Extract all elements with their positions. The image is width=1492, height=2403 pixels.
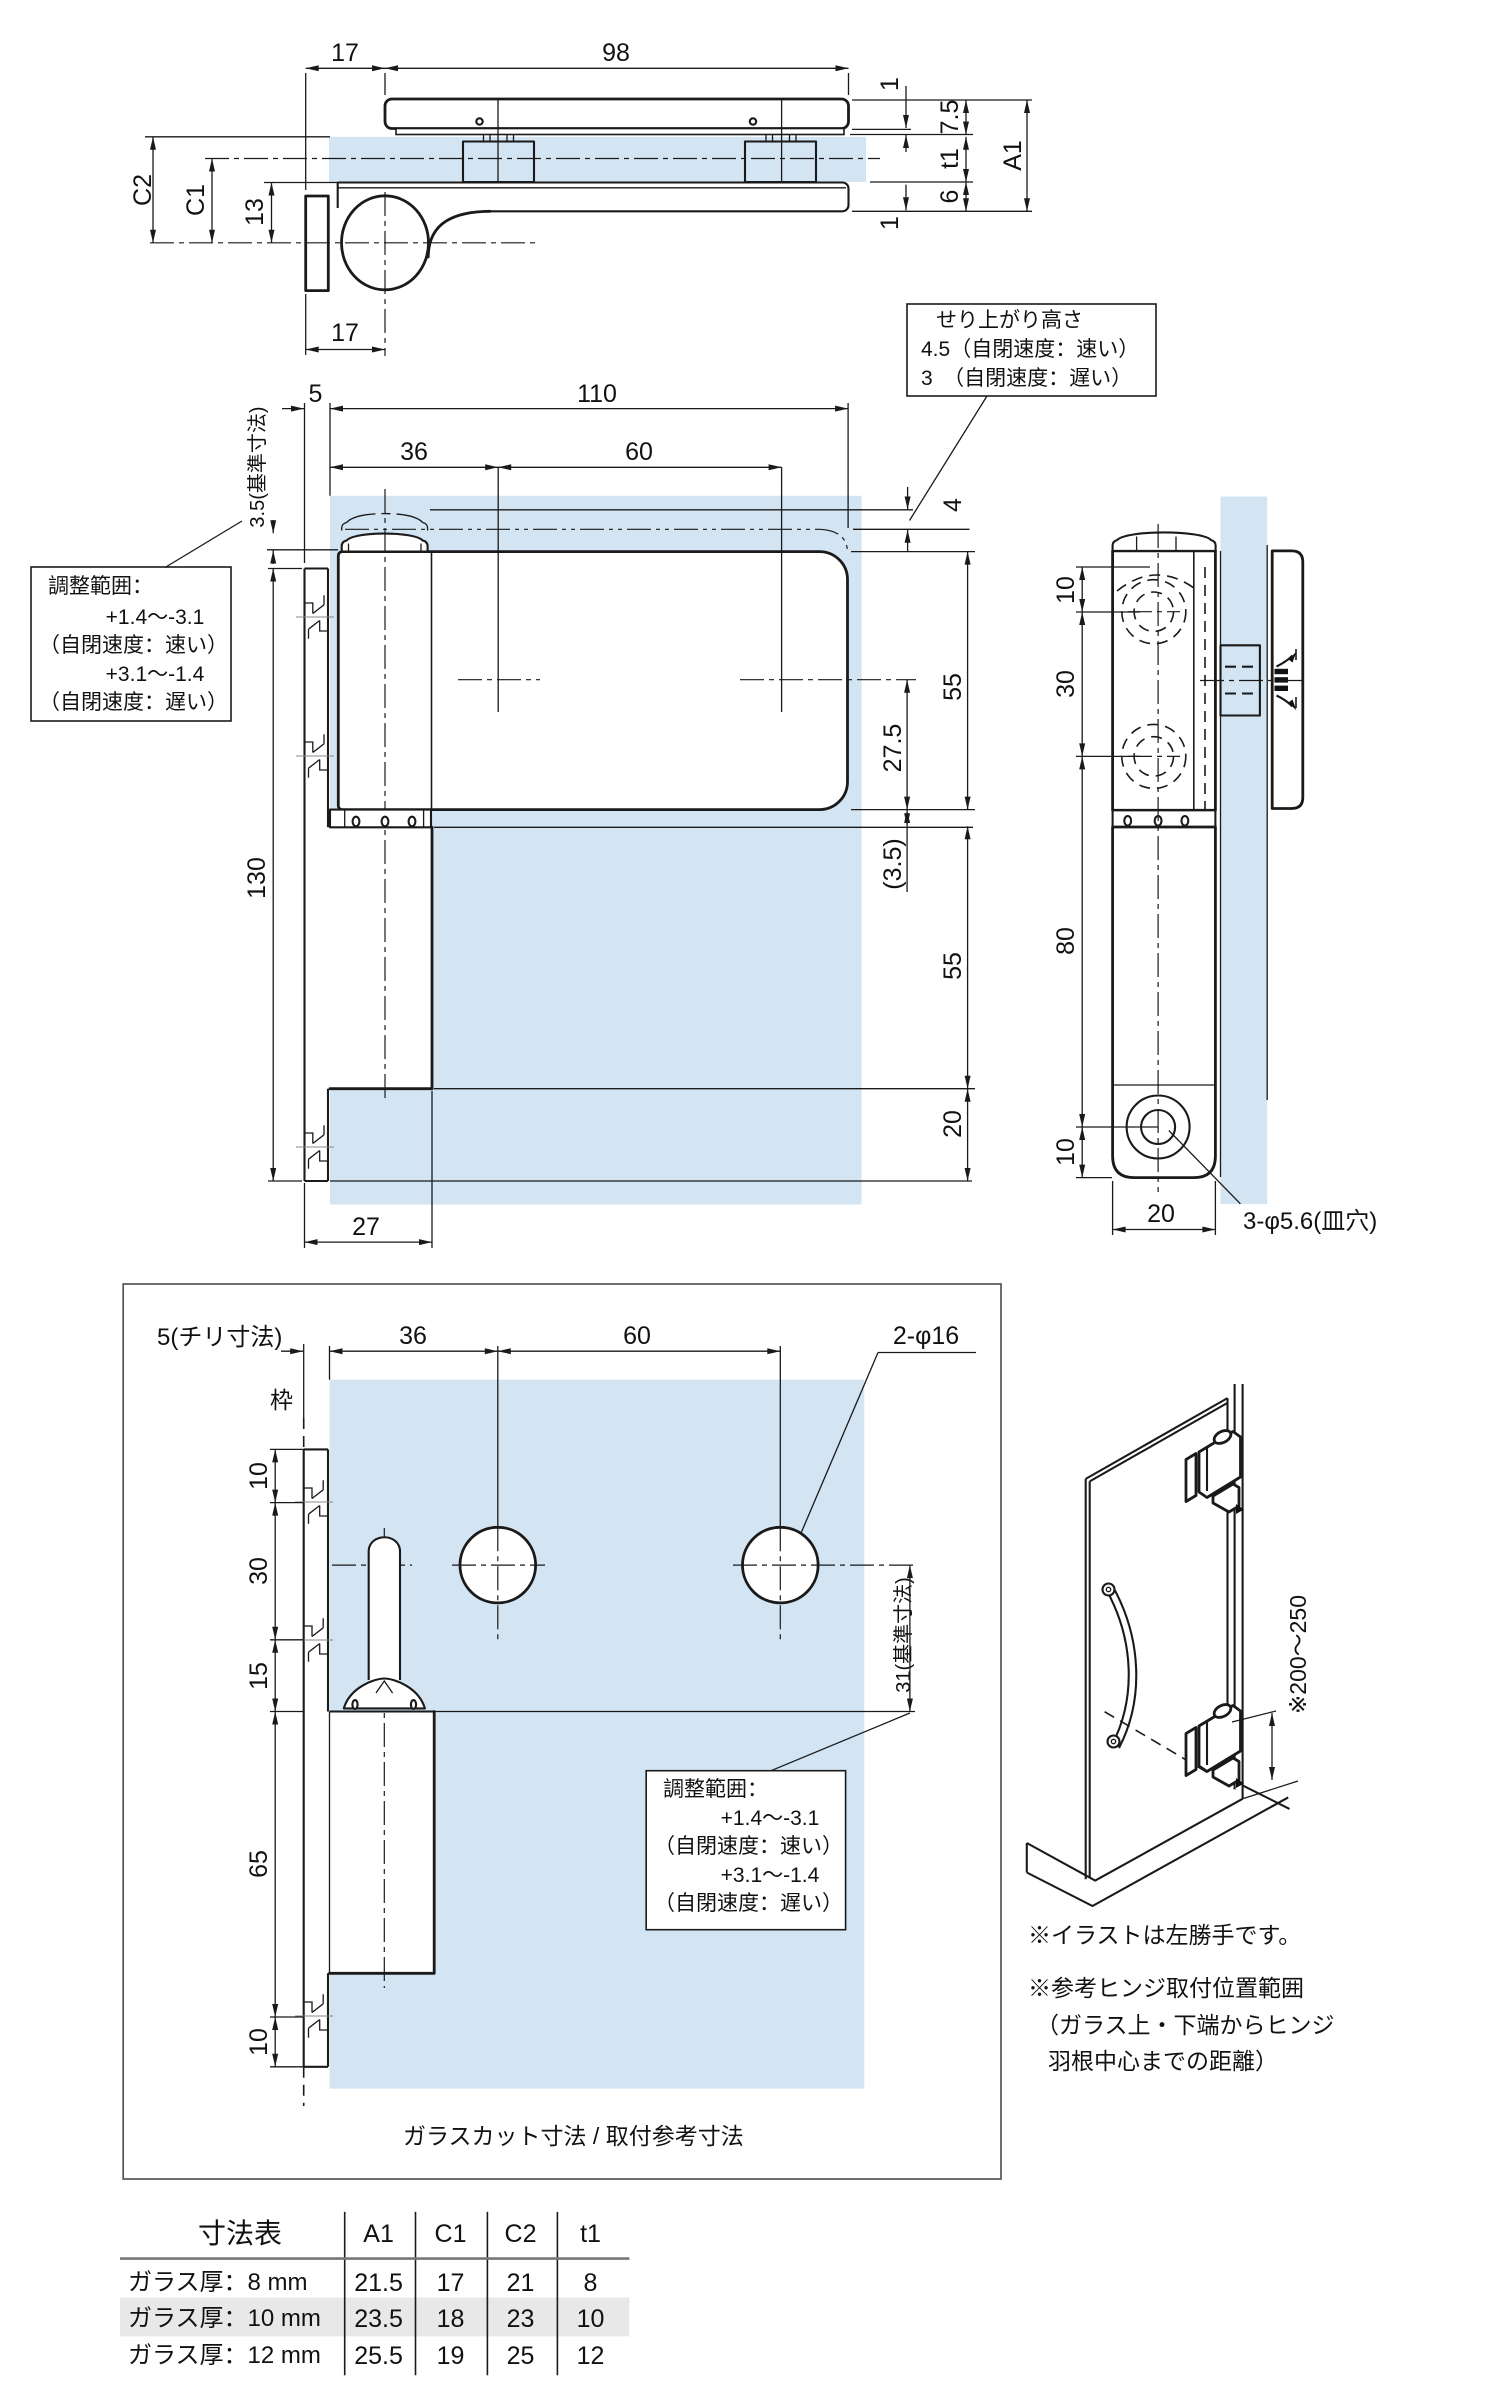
svg-text:4.5（自閉速度：速い）: 4.5（自閉速度：速い） bbox=[921, 338, 1139, 361]
svg-text:25.5: 25.5 bbox=[354, 2342, 403, 2370]
svg-text:+1.4〜-3.1: +1.4〜-3.1 bbox=[106, 606, 205, 629]
svg-text:（自閉速度：速い）: （自閉速度：速い） bbox=[39, 634, 228, 657]
svg-text:30: 30 bbox=[245, 1557, 273, 1585]
svg-text:98: 98 bbox=[602, 39, 630, 67]
svg-text:23.5: 23.5 bbox=[354, 2305, 403, 2333]
svg-text:調整範囲：: 調整範囲： bbox=[48, 575, 153, 598]
svg-text:10: 10 bbox=[1052, 576, 1080, 604]
svg-text:枠: 枠 bbox=[270, 1387, 293, 1413]
svg-text:55: 55 bbox=[939, 673, 967, 701]
svg-text:寸法表: 寸法表 bbox=[198, 2218, 282, 2249]
svg-text:27: 27 bbox=[352, 1213, 380, 1241]
svg-text:21.5: 21.5 bbox=[354, 2269, 403, 2297]
svg-text:12: 12 bbox=[577, 2342, 605, 2370]
svg-text:ガラス厚：10 mm: ガラス厚：10 mm bbox=[128, 2305, 321, 2332]
svg-text:130: 130 bbox=[243, 857, 271, 899]
svg-text:10: 10 bbox=[577, 2305, 605, 2333]
svg-text:7.5: 7.5 bbox=[936, 100, 964, 135]
svg-text:65: 65 bbox=[245, 1850, 273, 1878]
svg-text:（自閉速度：遅い）: （自閉速度：遅い） bbox=[39, 691, 228, 714]
svg-text:A1: A1 bbox=[363, 2220, 394, 2248]
svg-text:1: 1 bbox=[876, 77, 904, 91]
svg-text:15: 15 bbox=[245, 1662, 273, 1690]
svg-text:23: 23 bbox=[507, 2305, 535, 2333]
svg-text:17: 17 bbox=[437, 2269, 465, 2297]
svg-text:(3.5): (3.5) bbox=[879, 838, 907, 889]
svg-text:※イラストは左勝手です。: ※イラストは左勝手です。 bbox=[1028, 1922, 1301, 1948]
svg-text:t1: t1 bbox=[936, 148, 964, 169]
svg-text:17: 17 bbox=[331, 319, 359, 347]
svg-text:（ガラス上・下端からヒンジ: （ガラス上・下端からヒンジ bbox=[1036, 2012, 1335, 2038]
svg-text:80: 80 bbox=[1052, 927, 1080, 955]
svg-text:せり上がり高さ: せり上がり高さ bbox=[936, 309, 1083, 332]
svg-text:6: 6 bbox=[936, 190, 964, 204]
svg-text:5(チリ寸法): 5(チリ寸法) bbox=[157, 1324, 282, 1351]
svg-text:※200〜250: ※200〜250 bbox=[1285, 1595, 1311, 1714]
svg-text:21: 21 bbox=[507, 2269, 535, 2297]
svg-text:2-φ16: 2-φ16 bbox=[893, 1322, 959, 1350]
svg-text:ガラス厚：8 mm: ガラス厚：8 mm bbox=[128, 2269, 308, 2296]
svg-text:4: 4 bbox=[939, 498, 967, 512]
svg-text:+3.1〜-1.4: +3.1〜-1.4 bbox=[106, 663, 205, 686]
svg-text:3.5(基準寸法): 3.5(基準寸法) bbox=[246, 406, 269, 527]
svg-text:調整範囲：: 調整範囲： bbox=[663, 1778, 768, 1801]
svg-text:27.5: 27.5 bbox=[879, 724, 907, 773]
svg-text:10: 10 bbox=[245, 1462, 273, 1490]
svg-text:31(基準寸法): 31(基準寸法) bbox=[892, 1577, 915, 1693]
svg-text:A1: A1 bbox=[999, 140, 1027, 171]
svg-text:36: 36 bbox=[400, 438, 428, 466]
svg-text:55: 55 bbox=[939, 952, 967, 980]
svg-text:10: 10 bbox=[245, 2028, 273, 2056]
svg-text:13: 13 bbox=[241, 198, 269, 226]
svg-text:+1.4〜-3.1: +1.4〜-3.1 bbox=[721, 1807, 820, 1830]
svg-text:羽根中心までの距離）: 羽根中心までの距離） bbox=[1048, 2048, 1278, 2074]
svg-text:C1: C1 bbox=[182, 184, 210, 216]
svg-text:36: 36 bbox=[399, 1322, 427, 1350]
svg-text:C2: C2 bbox=[505, 2220, 537, 2248]
svg-text:8: 8 bbox=[584, 2269, 598, 2297]
svg-text:ガラスカット寸法 / 取付参考寸法: ガラスカット寸法 / 取付参考寸法 bbox=[403, 2123, 744, 2149]
svg-text:60: 60 bbox=[623, 1322, 651, 1350]
svg-text:※参考ヒンジ取付位置範囲: ※参考ヒンジ取付位置範囲 bbox=[1028, 1975, 1304, 2001]
svg-text:18: 18 bbox=[437, 2305, 465, 2333]
svg-text:20: 20 bbox=[1147, 1200, 1175, 1228]
svg-text:+3.1〜-1.4: +3.1〜-1.4 bbox=[721, 1864, 820, 1887]
svg-text:110: 110 bbox=[577, 380, 617, 408]
svg-text:C1: C1 bbox=[435, 2220, 467, 2248]
svg-text:t1: t1 bbox=[580, 2220, 601, 2248]
svg-text:1: 1 bbox=[876, 216, 904, 230]
svg-text:3 （自閉速度：遅い）: 3 （自閉速度：遅い） bbox=[921, 367, 1132, 390]
svg-text:20: 20 bbox=[939, 1110, 967, 1138]
svg-text:（自閉速度：速い）: （自閉速度：速い） bbox=[654, 1835, 843, 1858]
svg-text:60: 60 bbox=[625, 438, 653, 466]
svg-text:ガラス厚：12 mm: ガラス厚：12 mm bbox=[128, 2342, 321, 2369]
svg-text:（自閉速度：遅い）: （自閉速度：遅い） bbox=[654, 1892, 843, 1915]
svg-text:19: 19 bbox=[437, 2342, 465, 2370]
svg-text:30: 30 bbox=[1052, 670, 1080, 698]
svg-text:10: 10 bbox=[1052, 1138, 1080, 1166]
svg-text:17: 17 bbox=[331, 39, 359, 67]
svg-text:3-φ5.6(皿穴): 3-φ5.6(皿穴) bbox=[1243, 1208, 1377, 1235]
svg-text:5: 5 bbox=[308, 380, 322, 408]
svg-text:C2: C2 bbox=[129, 174, 157, 206]
svg-text:25: 25 bbox=[507, 2342, 535, 2370]
